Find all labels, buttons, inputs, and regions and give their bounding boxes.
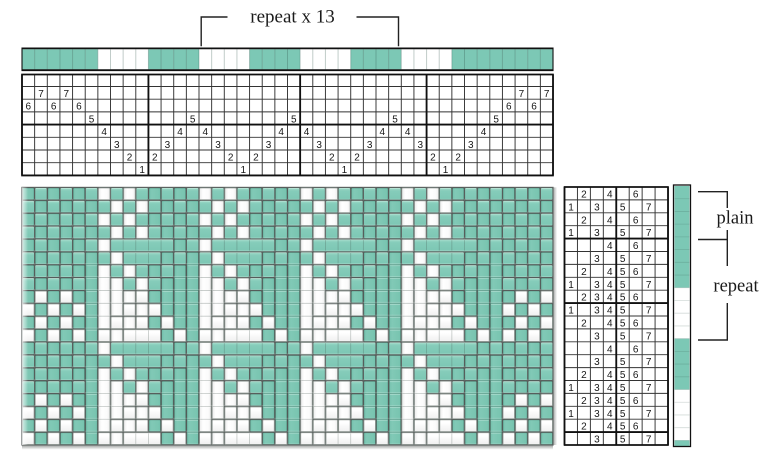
svg-text:3: 3: [165, 140, 171, 151]
svg-text:6: 6: [51, 102, 57, 113]
svg-text:3: 3: [316, 140, 322, 151]
svg-text:6: 6: [26, 102, 32, 113]
svg-text:4: 4: [607, 319, 613, 330]
svg-text:1: 1: [443, 165, 449, 176]
svg-text:5: 5: [620, 254, 626, 265]
svg-text:5: 5: [620, 370, 626, 381]
svg-text:plain: plain: [717, 209, 754, 229]
svg-text:4: 4: [607, 409, 613, 420]
svg-text:repeat x 13: repeat x 13: [250, 6, 334, 27]
svg-text:5: 5: [620, 422, 626, 433]
svg-text:2: 2: [228, 153, 234, 164]
svg-text:5: 5: [620, 357, 626, 368]
svg-text:3: 3: [594, 331, 600, 342]
svg-text:5: 5: [620, 306, 626, 317]
svg-text:2: 2: [430, 153, 436, 164]
svg-text:7: 7: [646, 357, 652, 368]
svg-text:2: 2: [581, 396, 587, 407]
svg-text:6: 6: [531, 102, 537, 113]
svg-text:3: 3: [594, 293, 600, 304]
svg-text:3: 3: [594, 409, 600, 420]
svg-text:6: 6: [633, 370, 639, 381]
svg-text:6: 6: [633, 215, 639, 226]
svg-text:4: 4: [278, 127, 284, 138]
svg-text:4: 4: [607, 267, 613, 278]
svg-text:4: 4: [405, 127, 411, 138]
svg-text:1: 1: [568, 306, 574, 317]
svg-text:1: 1: [568, 280, 574, 291]
svg-text:4: 4: [607, 370, 613, 381]
svg-text:7: 7: [646, 409, 652, 420]
svg-text:1: 1: [139, 165, 145, 176]
svg-text:2: 2: [581, 190, 587, 201]
svg-text:7: 7: [646, 202, 652, 213]
svg-text:3: 3: [594, 383, 600, 394]
svg-text:3: 3: [114, 140, 120, 151]
svg-text:1: 1: [568, 409, 574, 420]
svg-text:3: 3: [594, 202, 600, 213]
svg-text:5: 5: [392, 114, 398, 125]
svg-text:repeat: repeat: [713, 277, 759, 297]
svg-text:6: 6: [76, 102, 82, 113]
svg-text:4: 4: [607, 383, 613, 394]
svg-text:5: 5: [620, 435, 626, 446]
svg-text:4: 4: [607, 306, 613, 317]
svg-text:3: 3: [418, 140, 424, 151]
svg-text:6: 6: [633, 422, 639, 433]
svg-text:3: 3: [594, 306, 600, 317]
svg-text:5: 5: [620, 331, 626, 342]
svg-text:1: 1: [568, 202, 574, 213]
svg-text:3: 3: [594, 396, 600, 407]
svg-text:2: 2: [581, 422, 587, 433]
svg-text:6: 6: [633, 344, 639, 355]
svg-text:7: 7: [646, 280, 652, 291]
svg-text:4: 4: [607, 241, 613, 252]
svg-text:5: 5: [620, 202, 626, 213]
svg-text:5: 5: [620, 228, 626, 239]
svg-text:2: 2: [581, 215, 587, 226]
svg-text:5: 5: [493, 114, 499, 125]
svg-text:4: 4: [177, 127, 183, 138]
svg-text:3: 3: [468, 140, 474, 151]
svg-text:4: 4: [607, 280, 613, 291]
svg-text:2: 2: [455, 153, 461, 164]
svg-text:5: 5: [620, 396, 626, 407]
svg-text:4: 4: [607, 396, 613, 407]
svg-text:4: 4: [607, 190, 613, 201]
svg-text:7: 7: [646, 383, 652, 394]
svg-text:4: 4: [380, 127, 386, 138]
svg-text:5: 5: [620, 383, 626, 394]
svg-text:1: 1: [241, 165, 247, 176]
svg-text:6: 6: [506, 102, 512, 113]
svg-text:5: 5: [89, 114, 95, 125]
svg-text:6: 6: [633, 267, 639, 278]
svg-text:6: 6: [633, 190, 639, 201]
svg-text:2: 2: [581, 267, 587, 278]
svg-text:3: 3: [594, 228, 600, 239]
svg-text:4: 4: [101, 127, 107, 138]
svg-text:2: 2: [581, 319, 587, 330]
svg-text:7: 7: [64, 89, 70, 100]
svg-text:1: 1: [342, 165, 348, 176]
svg-text:5: 5: [620, 267, 626, 278]
svg-text:5: 5: [620, 293, 626, 304]
svg-text:1: 1: [568, 383, 574, 394]
svg-text:5: 5: [190, 114, 196, 125]
svg-text:4: 4: [607, 293, 613, 304]
svg-text:2: 2: [581, 370, 587, 381]
svg-text:7: 7: [38, 89, 44, 100]
svg-text:4: 4: [607, 215, 613, 226]
svg-text:3: 3: [594, 254, 600, 265]
svg-text:4: 4: [203, 127, 209, 138]
svg-text:2: 2: [329, 153, 335, 164]
svg-text:7: 7: [646, 228, 652, 239]
svg-text:2: 2: [253, 153, 259, 164]
svg-text:7: 7: [646, 306, 652, 317]
svg-text:3: 3: [594, 280, 600, 291]
svg-text:5: 5: [620, 280, 626, 291]
svg-text:5: 5: [291, 114, 297, 125]
svg-text:5: 5: [620, 319, 626, 330]
svg-text:2: 2: [354, 153, 360, 164]
svg-text:6: 6: [633, 396, 639, 407]
svg-text:2: 2: [152, 153, 158, 164]
svg-text:7: 7: [646, 254, 652, 265]
svg-text:6: 6: [633, 241, 639, 252]
svg-text:7: 7: [646, 435, 652, 446]
svg-text:4: 4: [304, 127, 310, 138]
svg-text:4: 4: [481, 127, 487, 138]
svg-text:7: 7: [544, 89, 550, 100]
svg-text:3: 3: [594, 435, 600, 446]
svg-text:5: 5: [620, 409, 626, 420]
svg-text:6: 6: [633, 293, 639, 304]
svg-text:2: 2: [581, 293, 587, 304]
svg-text:3: 3: [215, 140, 221, 151]
svg-text:4: 4: [607, 422, 613, 433]
svg-text:1: 1: [568, 228, 574, 239]
svg-text:3: 3: [594, 357, 600, 368]
svg-text:4: 4: [607, 344, 613, 355]
svg-text:2: 2: [127, 153, 133, 164]
svg-text:3: 3: [367, 140, 373, 151]
svg-text:7: 7: [646, 331, 652, 342]
svg-text:7: 7: [519, 89, 525, 100]
svg-text:6: 6: [633, 319, 639, 330]
svg-text:3: 3: [266, 140, 272, 151]
